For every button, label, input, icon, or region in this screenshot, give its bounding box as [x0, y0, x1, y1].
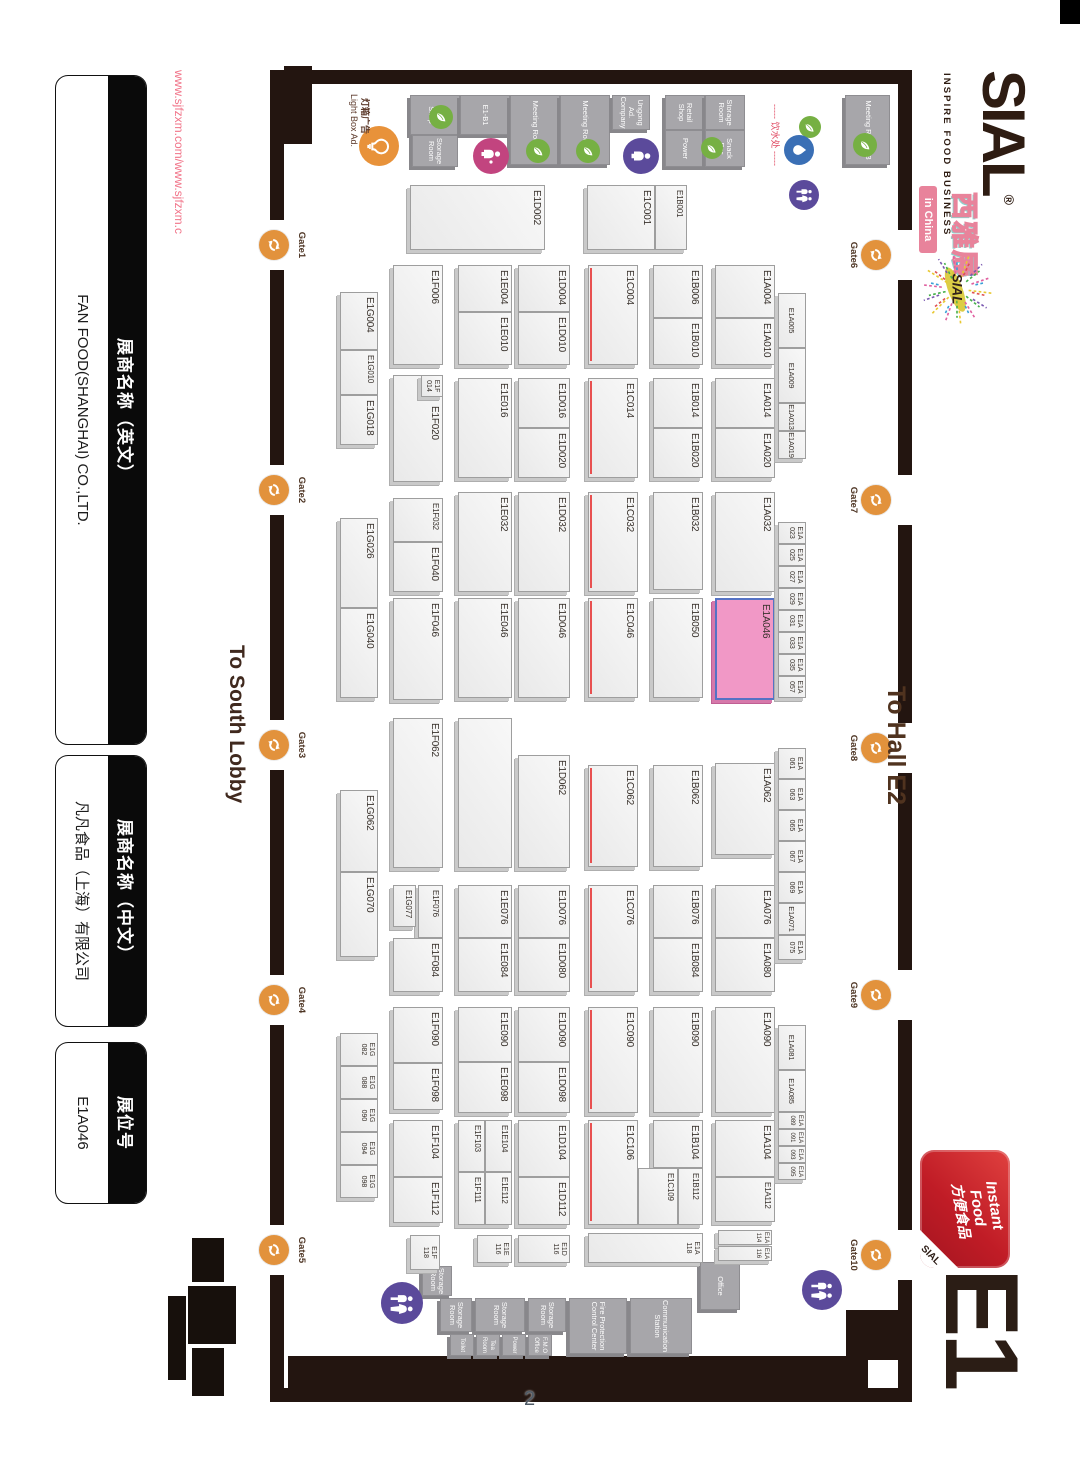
booth-E1G010: E1G010	[340, 350, 378, 395]
booth-label: E1A033	[779, 633, 805, 653]
booth-E1A069: E1A069	[778, 872, 806, 903]
booth-label: E1F014	[422, 376, 442, 396]
booth-E1A071: E1A071	[778, 903, 806, 935]
booth-E1A029: E1A029	[778, 588, 806, 610]
panel-title: 展位号	[108, 1043, 146, 1203]
leaf-icon	[526, 139, 550, 163]
room-label: Fire Protection Control Center	[590, 1301, 607, 1351]
booth-E1G018: E1G018	[340, 395, 378, 445]
booth-E1D010: E1D010	[518, 312, 570, 365]
booth-label: E1G090	[341, 1100, 377, 1131]
booth-E1C090: E1C090	[588, 1007, 638, 1113]
room-tea-room: Tea Room	[476, 1334, 500, 1356]
ad-note-en: Light Box Ad.	[349, 94, 359, 147]
booth-E1C046: E1C046	[588, 598, 638, 698]
booth-E1F076: E1F076	[418, 885, 443, 938]
hall-wall	[270, 1388, 302, 1402]
booth-label: E1A004	[761, 270, 772, 304]
booth-label: E1A071	[779, 904, 805, 934]
ad-note-cn: 灯箱广告	[359, 98, 372, 134]
room-label: Power	[510, 1337, 519, 1354]
hall-wall	[270, 70, 912, 84]
booth-label: E1F112	[429, 1182, 440, 1215]
hall-wall	[270, 515, 284, 720]
booth-label: E1A118	[589, 1234, 702, 1262]
booth-label: E1D010	[556, 317, 567, 352]
booth-label: E1D046	[556, 603, 567, 638]
booth-E1A005: E1A005	[778, 293, 806, 348]
room-label: Storage Room	[448, 1301, 465, 1329]
water-drop-icon	[784, 135, 814, 165]
hall-wall	[898, 70, 912, 230]
booth-label: E1E004	[498, 270, 509, 304]
booth-label: E1F076	[431, 890, 440, 917]
booth-E1A090: E1A090	[715, 1007, 775, 1113]
booth-label: E1G070	[364, 877, 375, 913]
room-storage-room: Storage Room	[475, 1298, 525, 1332]
escalator-icon	[259, 985, 289, 1015]
room-label: Storage Room	[492, 1301, 509, 1329]
booth-label: E1A013	[779, 404, 805, 430]
watermark: www.sjfzxm.com/www.sjfzxm.c	[172, 70, 186, 234]
hall-wall	[270, 770, 284, 975]
booth-E1A118: E1A118	[588, 1233, 703, 1263]
booth-label: E1F020	[429, 406, 440, 440]
leaf-icon	[576, 139, 600, 163]
structure-shape	[192, 1348, 224, 1396]
booth-label: E1A062	[761, 768, 772, 802]
booth-E1E090: E1E090	[458, 1007, 512, 1062]
booth-label: E1A010	[761, 323, 772, 357]
booth-E1D104: E1D104	[518, 1120, 570, 1177]
booth-label: E1G082	[341, 1034, 377, 1065]
booth-E1D032: E1D032	[518, 492, 570, 592]
booth-block	[458, 718, 512, 868]
booth-E1B020: E1B020	[653, 428, 703, 478]
instant-food-badge-text: Instant Food 方便食品	[944, 1155, 1010, 1262]
room-office: Office	[700, 1262, 740, 1310]
room-label: Power	[681, 138, 690, 159]
booth-label: E1D032	[556, 497, 567, 532]
drinking-water-label: ----- 饮水处 -----	[769, 104, 782, 166]
booth-label: E1A029	[779, 589, 805, 609]
booth-label: E1F062	[429, 723, 440, 757]
booth-E1A023: E1A023	[778, 522, 806, 544]
booth-E1D080: E1D080	[518, 938, 570, 992]
booth-label: E1A069	[779, 873, 805, 902]
room-label: Storage Room	[717, 98, 734, 127]
red-aisle-line	[590, 1123, 593, 1221]
room-label: Office	[716, 1276, 725, 1295]
booth-label: E1B001	[675, 190, 684, 217]
booth-label: E1B084	[689, 943, 700, 977]
booth-label: E1C109	[666, 1173, 675, 1201]
red-aisle-line	[590, 601, 593, 694]
hall-wall	[846, 1310, 898, 1360]
panel-value: FAN FOOD(SHANGHAI) CO.,LTD.	[58, 76, 108, 744]
booth-label: E1E010	[498, 317, 509, 351]
booth-E1A019: E1A019	[778, 431, 806, 459]
booth-label: E1G026	[364, 523, 375, 559]
booth-label: E1G040	[364, 613, 375, 649]
booth-label: E1E046	[498, 603, 509, 637]
structure-shape	[188, 1286, 236, 1344]
booth-label: E1E076	[498, 890, 509, 924]
booth-E1F046: E1F046	[393, 598, 443, 700]
booth-E1E112: E1E112	[485, 1172, 512, 1225]
booth-label: E1A076	[761, 890, 772, 924]
room-ungong-ad-company: Ungong Ad. Company	[612, 95, 650, 130]
booth-E1D016: E1D016	[518, 378, 570, 428]
booth-E1E004: E1E004	[458, 265, 512, 312]
booth-label: E1F111	[473, 1177, 482, 1203]
room-label: Toilet	[458, 1338, 467, 1352]
booth-label: E1A014	[761, 383, 772, 417]
booth-E1D046: E1D046	[518, 598, 570, 698]
gate-label-gate4: Gate4	[296, 965, 307, 1035]
booth-label: E1A089	[779, 1113, 805, 1128]
booth-label: E1A005	[779, 294, 805, 347]
booth-E1B010: E1B010	[653, 318, 703, 365]
booth-label: E1F084	[429, 943, 440, 977]
booth-label: E1A104	[761, 1125, 772, 1159]
booth-E1A033: E1A033	[778, 632, 806, 654]
room-label: E1-B1	[481, 105, 490, 126]
booth-label: E1A057	[779, 677, 805, 697]
booth-E1A035: E1A035	[778, 654, 806, 676]
gate-label-gate9: Gate9	[848, 960, 859, 1030]
booth-label: E1G062	[364, 795, 375, 831]
booth-E1F111: E1F111	[458, 1172, 485, 1225]
booth-E1C004: E1C004	[588, 265, 638, 365]
registered-mark: ®	[1001, 195, 1017, 205]
entrance-person-icon	[473, 138, 509, 174]
booth-label: E1B050	[689, 603, 700, 637]
gate-label-gate8: Gate8	[848, 713, 859, 783]
booth-E1G094: E1G094	[340, 1132, 378, 1165]
booth-E1F032: E1F032	[393, 498, 443, 542]
booth-E1F062: E1F062	[393, 718, 443, 868]
booth-E1C109: E1C109	[638, 1168, 678, 1225]
gate-label-gate3: Gate3	[296, 710, 307, 780]
booth-label: E1G098	[341, 1166, 377, 1197]
gate-label-gate10: Gate10	[848, 1220, 859, 1290]
booth-E1D076: E1D076	[518, 885, 570, 938]
hall-wall	[270, 270, 284, 465]
booth-E1A010: E1A010	[715, 318, 775, 365]
booth-label: E1A116	[719, 1247, 771, 1260]
booth-E1D116: E1D116	[518, 1235, 570, 1263]
booth-E1F084: E1F084	[393, 938, 443, 992]
booth-label: E1F118	[411, 1236, 439, 1269]
svg-text:SIAL: SIAL	[950, 274, 965, 305]
panel-title: 展商名称（英文）	[108, 76, 146, 744]
booth-label: E1D104	[556, 1125, 567, 1160]
booth-label: E1B010	[689, 323, 700, 357]
hall-wall	[288, 1356, 868, 1402]
instant-food-badge: Instant Food 方便食品 SIAL	[920, 1150, 1010, 1268]
room-power: Power	[665, 130, 705, 167]
room-storage-room: Storage Room	[412, 135, 458, 167]
booth-E1D004: E1D004	[518, 265, 570, 312]
booth-label: E1B076	[689, 890, 700, 924]
hall-wall	[898, 1280, 912, 1402]
booth-E1C001: E1C001	[587, 185, 655, 250]
booth-label: E1A095	[779, 1164, 805, 1179]
booth-label: E1F006	[429, 270, 440, 304]
booth-label: E1B014	[689, 383, 700, 417]
booth-E1E046: E1E046	[458, 598, 512, 698]
booth-label: E1F090	[429, 1012, 440, 1046]
page-corner-mark	[1060, 0, 1080, 24]
hall-wall	[284, 66, 312, 144]
booth-label: E1C090	[624, 1012, 635, 1047]
room-toilet: Toilet	[450, 1334, 474, 1356]
booth-E1D090: E1D090	[518, 1007, 570, 1062]
booth-label: E1A065	[779, 811, 805, 840]
booth-E1A075: E1A075	[778, 935, 806, 960]
booth-label: E1A112	[763, 1182, 772, 1209]
direction-south-lobby: To South Lobby	[224, 645, 248, 803]
booth-E1F118: E1F118	[410, 1235, 440, 1270]
booth-E1F006: E1F006	[393, 265, 443, 365]
booth-label: E1A019	[779, 432, 805, 458]
page-number: 2	[524, 1388, 535, 1411]
booth-E1B006: E1B006	[653, 265, 703, 318]
booth-label: E1D004	[556, 270, 567, 305]
booth-E1A057: E1A057	[778, 676, 806, 698]
escalator-icon	[259, 230, 289, 260]
room-label: Storage Room	[429, 1268, 446, 1294]
gate-label-gate2: Gate2	[296, 455, 307, 525]
booth-label: E1C046	[624, 603, 635, 638]
booth-E1A065: E1A065	[778, 810, 806, 841]
booth-E1C014: E1C014	[588, 378, 638, 478]
fireworks-graphic: SIAL	[912, 244, 1002, 334]
gate-label-gate1: Gate1	[296, 210, 307, 280]
restroom-icon	[381, 1282, 423, 1324]
booth-label: E1D112	[556, 1182, 567, 1216]
hall-wall	[270, 1275, 284, 1402]
booth-E1A112: E1A112	[715, 1177, 775, 1222]
hall-wall	[898, 1020, 912, 1230]
booth-label: E1F098	[429, 1068, 440, 1102]
room-fire-protection-control-center: Fire Protection Control Center	[569, 1298, 627, 1354]
booth-label: E1D002	[531, 190, 542, 225]
panel-value: 凡凡食品（上海）有限公司	[58, 756, 108, 1026]
booth-label: E1A061	[779, 749, 805, 778]
booth-E1A095: E1A095	[778, 1163, 806, 1180]
booth-E1G090: E1G090	[340, 1099, 378, 1132]
room-e1-b1: E1-B1	[460, 95, 510, 135]
direction-hall-e2: To Hall E2	[881, 686, 910, 805]
leaf-icon	[701, 137, 723, 159]
booth-label: E1E016	[498, 383, 509, 417]
booth-E1F040: E1F040	[393, 542, 443, 592]
hall-id: E1	[921, 1268, 1040, 1387]
booth-E1C062: E1C062	[588, 765, 638, 867]
booth-E1B014: E1B014	[653, 378, 703, 428]
room-label: Storage Room	[427, 138, 444, 164]
escalator-icon	[259, 475, 289, 505]
booth-E1A014: E1A014	[715, 378, 775, 428]
booth-E1C076: E1C076	[588, 885, 638, 992]
booth-E1A027: E1A027	[778, 566, 806, 588]
booth-label: E1A075	[779, 936, 805, 959]
leaf-icon	[853, 133, 877, 157]
room-label: F.M.O Office	[532, 1337, 549, 1353]
booth-label: E1G077	[404, 890, 413, 918]
booth-E1G082: E1G082	[340, 1033, 378, 1066]
booth-label: E1E090	[498, 1012, 509, 1046]
room-label: Storage Room	[539, 1301, 556, 1329]
booth-E1A081: E1A081	[778, 1025, 806, 1070]
booth-E1D020: E1D020	[518, 428, 570, 478]
booth-label: E1F040	[429, 547, 440, 581]
gate-label-gate6: Gate6	[848, 220, 859, 290]
escalator-icon	[861, 240, 891, 270]
booth-label: E1E104	[500, 1125, 509, 1152]
booth-label: E1B104	[689, 1125, 700, 1159]
booth-label: E1C062	[624, 770, 635, 805]
booth-E1A013: E1A013	[778, 403, 806, 431]
booth-label: E1B032	[689, 497, 700, 531]
booth-E1A020: E1A020	[715, 428, 775, 478]
booth-label: E1A009	[779, 349, 805, 402]
panel-value: E1A046	[58, 1043, 108, 1203]
red-aisle-line	[590, 768, 593, 863]
structure-shape	[192, 1238, 224, 1282]
booth-E1G004: E1G004	[340, 292, 378, 350]
exhibitor-name-en-panel: 展商名称（英文） FAN FOOD(SHANGHAI) CO.,LTD.	[55, 75, 147, 745]
booth-E1E104: E1E104	[485, 1120, 512, 1172]
booth-E1G040: E1G040	[340, 608, 378, 698]
booth-label: E1B020	[689, 433, 700, 467]
booth-E1A085: E1A085	[778, 1070, 806, 1112]
booth-E1A032: E1A032	[715, 492, 775, 592]
booth-E1A104: E1A104	[715, 1120, 775, 1177]
escalator-icon	[259, 1235, 289, 1265]
booth-label: E1A080	[761, 943, 772, 977]
booth-E1G026: E1G026	[340, 518, 378, 608]
booth-E1B104: E1B104	[653, 1120, 703, 1168]
booth-label: E1A081	[779, 1026, 805, 1069]
booth-label: E1G018	[364, 400, 375, 436]
restroom-icon	[802, 1270, 842, 1310]
booth-E1F112: E1F112	[393, 1177, 443, 1223]
booth-label: E1A091	[779, 1130, 805, 1145]
booth-label: E1A032	[761, 497, 772, 531]
room-storage-room: Storage Room	[705, 95, 745, 130]
booth-label: E1A093	[779, 1147, 805, 1162]
booth-E1A025: E1A025	[778, 544, 806, 566]
booth-E1F104: E1F104	[393, 1120, 443, 1177]
booth-E1B112: E1B112	[678, 1168, 703, 1225]
panel-title: 展商名称（中文）	[108, 756, 146, 1026]
red-aisle-line	[590, 1010, 593, 1109]
booth-E1E032: E1E032	[458, 492, 512, 592]
booth-label: E1D016	[556, 383, 567, 418]
booth-E1A067: E1A067	[778, 841, 806, 872]
in-china-badge: in China	[919, 186, 937, 253]
booth-E1F098: E1F098	[393, 1063, 443, 1110]
booth-E1A114: E1A114	[718, 1230, 772, 1245]
room-label: Retail Shop	[677, 98, 694, 127]
booth-E1B084: E1B084	[653, 938, 703, 992]
booth-E1E084: E1E084	[458, 938, 512, 992]
booth-label: E1A023	[779, 523, 805, 543]
red-aisle-line	[590, 495, 593, 588]
booth-label: E1D090	[556, 1012, 567, 1047]
structure-shape	[168, 1296, 186, 1380]
booth-E1A116: E1A116	[718, 1246, 772, 1261]
room-storage-room: Storage Room	[422, 1266, 452, 1296]
booth-E1G077: E1G077	[393, 885, 416, 927]
booth-label: E1A046	[760, 604, 771, 638]
booth-label: E1D080	[556, 943, 567, 978]
booth-label: E1C004	[624, 270, 635, 305]
escalator-icon	[861, 1240, 891, 1270]
room-power: Power	[502, 1334, 526, 1356]
booth-label: E1F032	[431, 503, 440, 530]
booth-E1G098: E1G098	[340, 1165, 378, 1198]
leaf-icon	[429, 105, 453, 129]
hall-wall	[270, 70, 284, 220]
booth-label: E1A027	[779, 567, 805, 587]
booth-label: E1C001	[641, 190, 652, 225]
booth-label: E1C032	[624, 497, 635, 532]
booth-label: E1E112	[500, 1177, 509, 1204]
page: Retail ShopStorage RoomE1-B1Meeting Room…	[0, 0, 1080, 1466]
red-aisle-line	[590, 268, 593, 361]
booth-E1F090: E1F090	[393, 1007, 443, 1063]
booth-label: E1D076	[556, 890, 567, 925]
room-storage-room: Storage Room	[440, 1298, 472, 1332]
booth-label: E1F103	[473, 1125, 482, 1152]
room-label: Communication Station	[653, 1300, 670, 1352]
booth-label: E1C014	[624, 383, 635, 418]
booth-E1E116: E1E116	[477, 1235, 512, 1263]
room-retail-shop: Retail Shop	[665, 95, 705, 130]
booth-label: E1A020	[761, 433, 772, 467]
booth-E1A046: E1A046	[715, 598, 775, 700]
room-communication-station: Communication Station	[630, 1298, 692, 1354]
booth-E1D002: E1D002	[410, 185, 545, 250]
booth-label: E1F046	[429, 603, 440, 637]
person-icon	[623, 138, 659, 174]
booth-E1C106: E1C106	[588, 1120, 638, 1225]
booth-label: E1C106	[624, 1125, 635, 1160]
booth-E1F103: E1F103	[458, 1120, 485, 1172]
booth-label: E1A067	[779, 842, 805, 871]
room-label: Ungong Ad. Company	[618, 96, 644, 128]
booth-label: E1B112	[691, 1173, 700, 1200]
booth-E1G070: E1G070	[340, 872, 378, 957]
booth-E1A089: E1A089	[778, 1112, 806, 1129]
booth-label: E1E032	[498, 497, 509, 531]
gate-label-gate7: Gate7	[848, 465, 859, 535]
booth-E1A076: E1A076	[715, 885, 775, 938]
booth-label: E1D062	[556, 760, 567, 795]
booth-E1A063: E1A063	[778, 779, 806, 810]
booth-label: E1D020	[556, 433, 567, 468]
booth-E1E098: E1E098	[458, 1062, 512, 1113]
booth-E1G088: E1G088	[340, 1066, 378, 1099]
booth-label: E1A085	[779, 1071, 805, 1111]
booth-label: E1B006	[689, 270, 700, 304]
booth-label: E1D116	[519, 1236, 569, 1262]
gate-label-gate5: Gate5	[296, 1215, 307, 1285]
